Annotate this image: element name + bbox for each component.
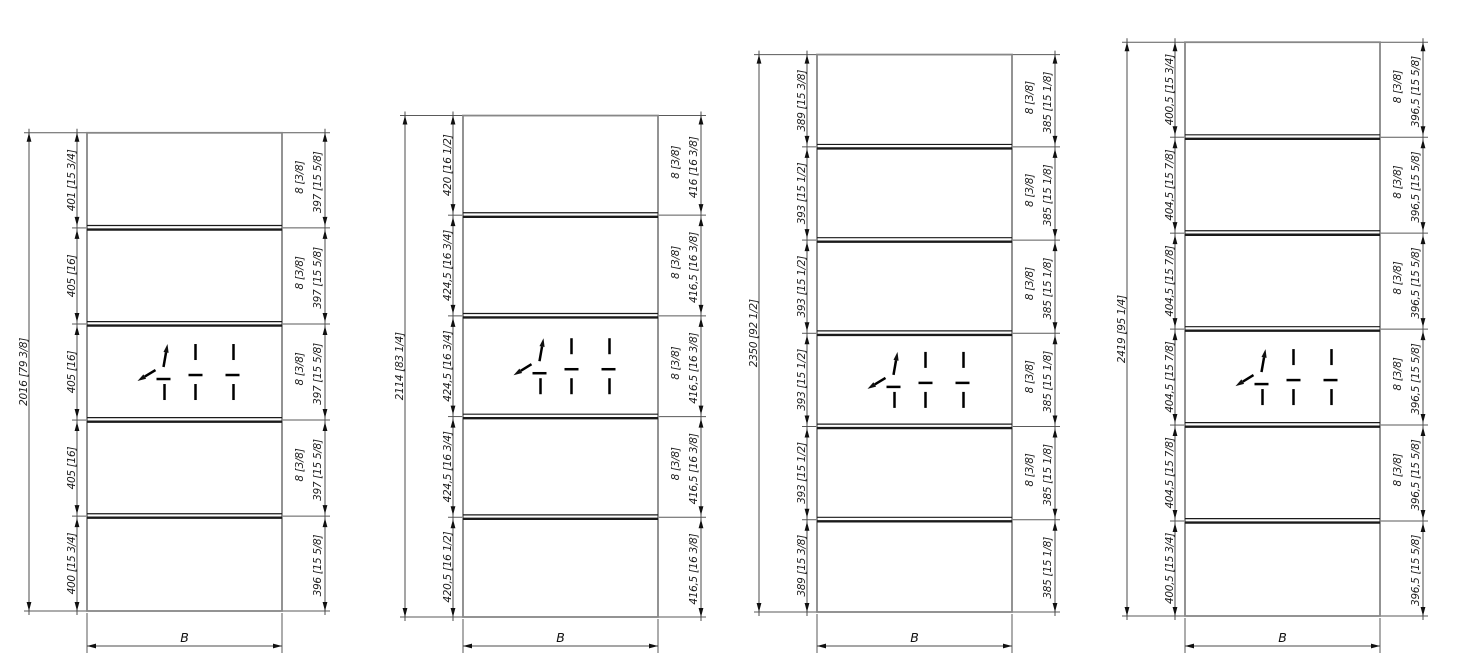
dim-arrow bbox=[699, 217, 704, 226]
dim-arrow bbox=[805, 416, 810, 425]
dim-arrow bbox=[323, 230, 328, 239]
arrow-shaft bbox=[1243, 375, 1254, 382]
left-opening-dim-label: 400,5 [15 3/4] bbox=[1164, 533, 1176, 604]
dim-arrow bbox=[75, 313, 80, 322]
panel-outline bbox=[87, 133, 282, 611]
left-opening-dim-label: 400,5 [15 3/4] bbox=[1164, 54, 1176, 125]
left-opening-dim-label: 424,5 [16 3/4] bbox=[442, 331, 454, 402]
right-opening-dim-label: 396,5 [15 5/8] bbox=[1410, 535, 1422, 606]
dim-arrow bbox=[1173, 235, 1178, 244]
dim-arrow bbox=[323, 133, 328, 142]
right-opening-dim-label: 396,5 [15 5/8] bbox=[1410, 247, 1422, 318]
right-opening-dim-label: 396 [15 5/8] bbox=[312, 535, 324, 597]
dim-arrow bbox=[323, 422, 328, 431]
left-opening-dim-label: 404,5 [15 7/8] bbox=[1164, 341, 1176, 412]
rail-thickness-dim-label: 8 [3/8] bbox=[670, 347, 682, 380]
dim-arrow bbox=[27, 133, 32, 142]
arrow-shaft bbox=[145, 370, 156, 377]
dim-arrow bbox=[805, 335, 810, 344]
right-opening-dim-label: 396,5 [15 5/8] bbox=[1410, 439, 1422, 510]
dim-arrow bbox=[1053, 322, 1058, 331]
dim-arrow bbox=[451, 305, 456, 314]
dim-arrow bbox=[649, 644, 658, 649]
dim-arrow bbox=[1053, 429, 1058, 438]
dim-arrow bbox=[805, 136, 810, 145]
dim-arrow bbox=[451, 217, 456, 226]
down-left-arrow bbox=[868, 378, 886, 389]
width-dim-label: B bbox=[910, 630, 919, 645]
rail-thickness-dim-label: 8 [3/8] bbox=[1024, 453, 1036, 486]
right-opening-dim-label: 416,5 [16 3/8] bbox=[688, 232, 700, 303]
right-opening-dim-label: 385 [15 1/8] bbox=[1042, 72, 1054, 134]
dim-arrow bbox=[1421, 607, 1426, 616]
right-opening-dim-label: 396,5 [15 5/8] bbox=[1410, 343, 1422, 414]
rail-thickness-dim-label: 8 [3/8] bbox=[1024, 267, 1036, 300]
dim-arrow bbox=[451, 116, 456, 125]
left-opening-dim-label: 424,5 [16 3/4] bbox=[442, 431, 454, 502]
left-opening-dim-label: 404,5 [15 7/8] bbox=[1164, 245, 1176, 316]
dim-arrow bbox=[699, 506, 704, 515]
dim-arrow bbox=[403, 608, 408, 617]
dim-arrow bbox=[1053, 242, 1058, 251]
rail-thickness-dim-label: 8 [3/8] bbox=[1024, 360, 1036, 393]
dim-arrow bbox=[27, 602, 32, 611]
dim-arrow bbox=[323, 217, 328, 226]
dim-arrow bbox=[699, 406, 704, 415]
rail-thickness-dim-label: 8 [3/8] bbox=[294, 352, 306, 385]
dim-arrow bbox=[805, 522, 810, 531]
left-opening-dim-label: 405 [16] bbox=[66, 447, 78, 490]
right-opening-dim-label: 416 [16 3/8] bbox=[688, 136, 700, 198]
dim-arrow bbox=[75, 230, 80, 239]
dim-arrow bbox=[451, 406, 456, 415]
dim-arrow bbox=[699, 519, 704, 528]
dim-arrow bbox=[757, 603, 762, 612]
dim-arrow bbox=[805, 509, 810, 518]
dim-arrow bbox=[1421, 42, 1426, 51]
dim-arrow bbox=[805, 229, 810, 238]
dim-arrow bbox=[757, 55, 762, 64]
total-dim-label: 2114 [83 1/4] bbox=[394, 332, 406, 400]
dim-arrow bbox=[1421, 235, 1426, 244]
left-opening-dim-label: 389 [15 3/8] bbox=[796, 535, 808, 597]
left-opening-dim-label: 393 [15 1/2] bbox=[796, 442, 808, 504]
rail-thickness-dim-label: 8 [3/8] bbox=[670, 447, 682, 480]
dim-arrow bbox=[1173, 427, 1178, 436]
right-opening-dim-label: 397 [15 5/8] bbox=[312, 343, 324, 405]
down-left-arrow bbox=[138, 370, 156, 381]
right-opening-dim-label: 396,5 [15 5/8] bbox=[1410, 151, 1422, 222]
dim-arrow bbox=[1053, 229, 1058, 238]
dim-arrow bbox=[75, 602, 80, 611]
dim-arrow bbox=[75, 409, 80, 418]
dim-arrow bbox=[463, 644, 472, 649]
dim-arrow bbox=[1173, 318, 1178, 327]
left-opening-dim-label: 404,5 [15 7/8] bbox=[1164, 149, 1176, 220]
panel-elevation-drawings: 2016 [79 3/8]401 [15 3/4]405 [16]405 [16… bbox=[0, 0, 1459, 670]
rail-thickness-dim-label: 8 [3/8] bbox=[294, 161, 306, 194]
arrow-head bbox=[163, 344, 168, 353]
dim-arrow bbox=[1173, 139, 1178, 148]
dim-arrow bbox=[699, 318, 704, 327]
dim-arrow bbox=[451, 419, 456, 428]
dim-arrow bbox=[1053, 509, 1058, 518]
dim-arrow bbox=[1053, 603, 1058, 612]
left-opening-dim-label: 400 [15 3/4] bbox=[66, 533, 78, 595]
dim-arrow bbox=[699, 305, 704, 314]
left-opening-dim-label: 405 [16] bbox=[66, 254, 78, 297]
dim-arrow bbox=[805, 603, 810, 612]
up-arrow bbox=[1261, 349, 1266, 372]
arrow-shaft bbox=[521, 364, 532, 371]
dim-arrow bbox=[75, 217, 80, 226]
down-left-arrow bbox=[514, 364, 532, 375]
rail-thickness-dim-label: 8 [3/8] bbox=[1392, 70, 1404, 103]
dim-arrow bbox=[87, 644, 96, 649]
dim-arrow bbox=[1053, 335, 1058, 344]
rail-thickness-dim-label: 8 [3/8] bbox=[670, 246, 682, 279]
right-opening-dim-label: 396,5 [15 5/8] bbox=[1410, 56, 1422, 127]
dim-arrow bbox=[699, 419, 704, 428]
dim-arrow bbox=[323, 518, 328, 527]
width-dim-label: B bbox=[1278, 630, 1287, 645]
left-opening-dim-label: 393 [15 1/2] bbox=[796, 162, 808, 224]
drawing-sheet: 2016 [79 3/8]401 [15 3/4]405 [16]405 [16… bbox=[0, 0, 1459, 670]
width-dim-label: B bbox=[180, 630, 189, 645]
dim-arrow bbox=[1421, 331, 1426, 340]
dim-arrow bbox=[323, 602, 328, 611]
dim-arrow bbox=[1371, 644, 1380, 649]
dim-arrow bbox=[1003, 644, 1012, 649]
right-opening-dim-label: 416,5 [16 3/8] bbox=[688, 433, 700, 504]
right-opening-dim-label: 416,5 [16 3/8] bbox=[688, 333, 700, 404]
rail-thickness-dim-label: 8 [3/8] bbox=[1024, 174, 1036, 207]
left-opening-dim-label: 389 [15 3/8] bbox=[796, 70, 808, 132]
arrow-shaft bbox=[894, 360, 897, 375]
rail-thickness-dim-label: 8 [3/8] bbox=[1392, 165, 1404, 198]
grain-direction-symbol bbox=[514, 338, 616, 394]
left-opening-dim-label: 420 [16 1/2] bbox=[442, 134, 454, 196]
dim-arrow bbox=[1173, 414, 1178, 423]
total-dim-label: 2419 [95 1/4] bbox=[1116, 295, 1128, 363]
dim-arrow bbox=[1173, 42, 1178, 51]
up-arrow bbox=[893, 352, 898, 375]
dim-arrow bbox=[451, 204, 456, 213]
dim-arrow bbox=[451, 318, 456, 327]
dim-arrow bbox=[323, 409, 328, 418]
dim-arrow bbox=[75, 518, 80, 527]
left-opening-dim-label: 393 [15 1/2] bbox=[796, 256, 808, 318]
dim-arrow bbox=[451, 506, 456, 515]
right-opening-dim-label: 385 [15 1/8] bbox=[1042, 444, 1054, 506]
right-opening-dim-label: 416,5 [16 3/8] bbox=[688, 533, 700, 604]
right-opening-dim-label: 397 [15 5/8] bbox=[312, 439, 324, 501]
dim-arrow bbox=[805, 149, 810, 158]
dim-arrow bbox=[699, 116, 704, 125]
panel-drawing-3: 2350 [92 1/2]389 [15 3/8]393 [15 1/2]393… bbox=[748, 51, 1060, 653]
dim-arrow bbox=[1173, 510, 1178, 519]
dim-arrow bbox=[1125, 607, 1130, 616]
arrow-head bbox=[539, 338, 544, 347]
dim-arrow bbox=[805, 55, 810, 64]
right-opening-dim-label: 385 [15 1/8] bbox=[1042, 351, 1054, 413]
dim-arrow bbox=[75, 326, 80, 335]
rail-thickness-dim-label: 8 [3/8] bbox=[294, 448, 306, 481]
panel-outline bbox=[817, 55, 1012, 612]
left-opening-dim-label: 420,5 [16 1/2] bbox=[442, 531, 454, 602]
panel-drawing-2: 2114 [83 1/4]420 [16 1/2]424,5 [16 3/4]4… bbox=[394, 112, 706, 653]
dim-arrow bbox=[323, 313, 328, 322]
dim-arrow bbox=[1173, 331, 1178, 340]
dim-arrow bbox=[75, 133, 80, 142]
rail-thickness-dim-label: 8 [3/8] bbox=[670, 146, 682, 179]
left-opening-dim-label: 405 [16] bbox=[66, 351, 78, 394]
dim-arrow bbox=[1173, 126, 1178, 135]
rail-thickness-dim-label: 8 [3/8] bbox=[1392, 261, 1404, 294]
dim-arrow bbox=[1053, 149, 1058, 158]
total-dim-label: 2016 [79 3/8] bbox=[18, 338, 30, 406]
arrow-head bbox=[893, 352, 898, 361]
dim-arrow bbox=[403, 116, 408, 125]
left-opening-dim-label: 424,5 [16 3/4] bbox=[442, 230, 454, 301]
left-opening-dim-label: 401 [15 3/4] bbox=[66, 149, 78, 211]
dim-arrow bbox=[75, 422, 80, 431]
up-arrow bbox=[163, 344, 168, 367]
dim-arrow bbox=[451, 519, 456, 528]
right-opening-dim-label: 385 [15 1/8] bbox=[1042, 258, 1054, 320]
dim-arrow bbox=[1053, 522, 1058, 531]
panel-outline bbox=[463, 116, 658, 617]
dim-arrow bbox=[273, 644, 282, 649]
dim-arrow bbox=[699, 608, 704, 617]
rail-thickness-dim-label: 8 [3/8] bbox=[1392, 453, 1404, 486]
panel-drawing-1: 2016 [79 3/8]401 [15 3/4]405 [16]405 [16… bbox=[18, 129, 330, 653]
dim-arrow bbox=[1053, 55, 1058, 64]
dim-arrow bbox=[1173, 523, 1178, 532]
dim-arrow bbox=[817, 644, 826, 649]
grain-direction-symbol bbox=[138, 344, 240, 400]
arrow-shaft bbox=[164, 352, 167, 367]
dim-arrow bbox=[323, 326, 328, 335]
up-arrow bbox=[539, 338, 544, 361]
total-dim-label: 2350 [92 1/2] bbox=[748, 299, 760, 367]
dim-arrow bbox=[1053, 416, 1058, 425]
dim-arrow bbox=[699, 204, 704, 213]
panel-outline bbox=[1185, 42, 1380, 616]
arrow-shaft bbox=[1262, 357, 1265, 372]
grain-direction-symbol bbox=[1236, 349, 1338, 405]
dim-arrow bbox=[451, 608, 456, 617]
right-opening-dim-label: 397 [15 5/8] bbox=[312, 151, 324, 213]
dim-arrow bbox=[1421, 427, 1426, 436]
width-dim-label: B bbox=[556, 630, 565, 645]
down-left-arrow bbox=[1236, 375, 1254, 386]
left-opening-dim-label: 404,5 [15 7/8] bbox=[1164, 437, 1176, 508]
dim-arrow bbox=[805, 242, 810, 251]
dim-arrow bbox=[805, 322, 810, 331]
arrow-head bbox=[1261, 349, 1266, 358]
rail-thickness-dim-label: 8 [3/8] bbox=[1392, 357, 1404, 390]
right-opening-dim-label: 385 [15 1/8] bbox=[1042, 164, 1054, 226]
right-opening-dim-label: 385 [15 1/8] bbox=[1042, 537, 1054, 599]
dim-arrow bbox=[1125, 42, 1130, 51]
arrow-shaft bbox=[875, 378, 886, 385]
dim-arrow bbox=[1185, 644, 1194, 649]
dim-arrow bbox=[1173, 222, 1178, 231]
panel-drawing-4: 2419 [95 1/4]400,5 [15 3/4]404,5 [15 7/8… bbox=[1116, 38, 1428, 653]
dim-arrow bbox=[75, 505, 80, 514]
right-opening-dim-label: 397 [15 5/8] bbox=[312, 247, 324, 309]
dim-arrow bbox=[1421, 523, 1426, 532]
arrow-shaft bbox=[540, 347, 543, 362]
grain-direction-symbol bbox=[868, 352, 970, 408]
rail-thickness-dim-label: 8 [3/8] bbox=[1024, 81, 1036, 114]
rail-thickness-dim-label: 8 [3/8] bbox=[294, 256, 306, 289]
dim-arrow bbox=[805, 429, 810, 438]
dim-arrow bbox=[1173, 607, 1178, 616]
dim-arrow bbox=[323, 505, 328, 514]
dim-arrow bbox=[1421, 139, 1426, 148]
dim-arrow bbox=[1053, 136, 1058, 145]
left-opening-dim-label: 393 [15 1/2] bbox=[796, 349, 808, 411]
